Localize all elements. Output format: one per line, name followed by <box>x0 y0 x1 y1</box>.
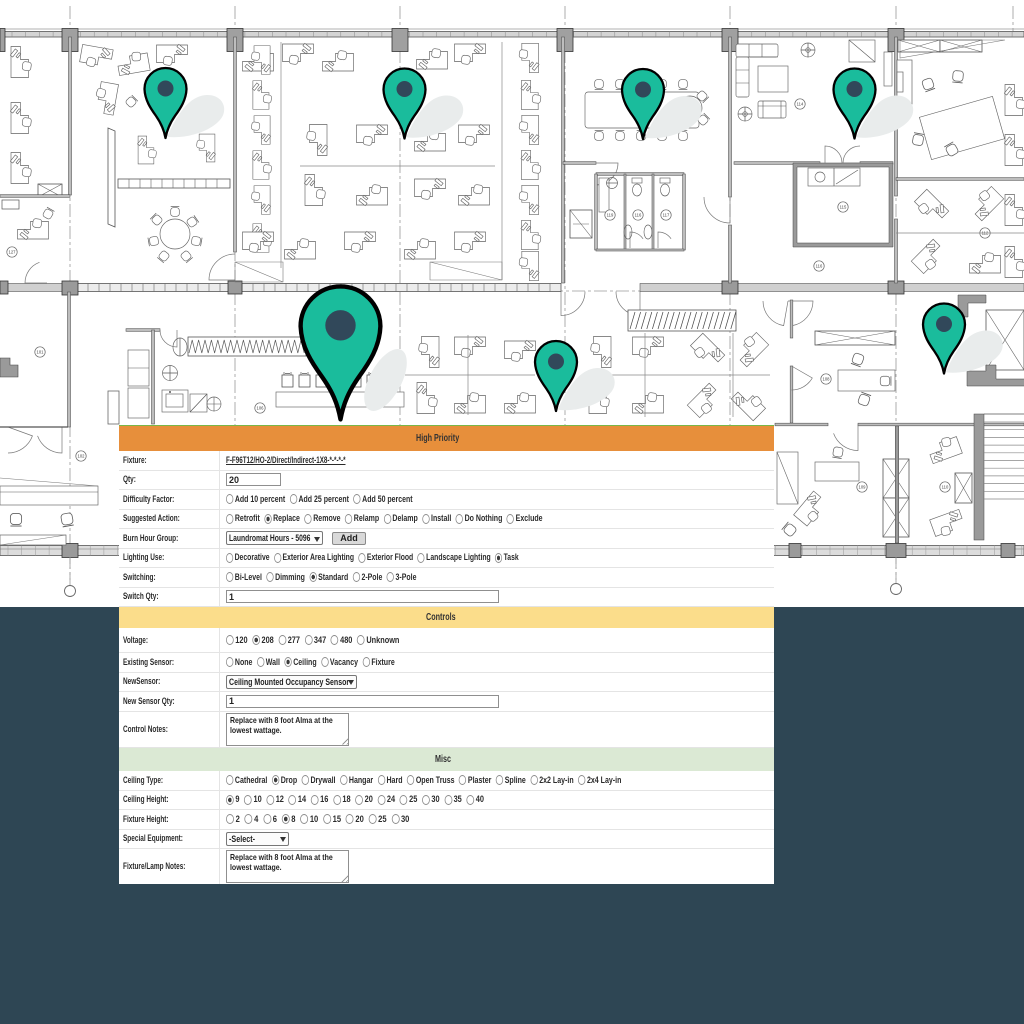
svg-text:116: 116 <box>816 264 823 269</box>
svg-text:110: 110 <box>942 485 949 490</box>
svg-text:109: 109 <box>859 485 867 490</box>
svg-text:115: 115 <box>840 205 847 210</box>
svg-text:108: 108 <box>823 377 831 382</box>
svg-text:101: 101 <box>37 350 45 355</box>
svg-text:114: 114 <box>797 102 804 107</box>
svg-text:116: 116 <box>635 213 642 218</box>
svg-text:117: 117 <box>663 213 670 218</box>
svg-text:106: 106 <box>257 406 265 411</box>
svg-text:119: 119 <box>607 213 614 218</box>
svg-text:102: 102 <box>78 454 86 459</box>
svg-text:127: 127 <box>9 250 17 255</box>
